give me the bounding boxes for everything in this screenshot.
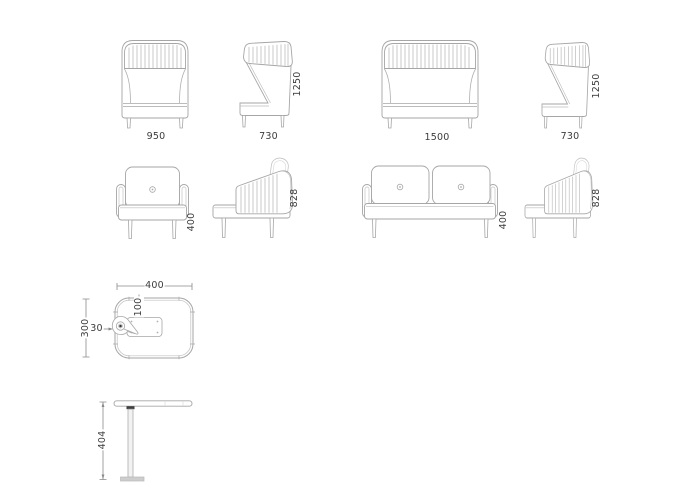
dim-label-hb-sofa-height: 1250	[592, 73, 602, 98]
lowback-sofa-side-view	[525, 157, 593, 237]
dim-label-hb-armchair-height: 1250	[293, 72, 303, 97]
table-side-view	[100, 401, 193, 481]
dim-label-table-inset: 100	[134, 296, 144, 317]
dim-label-lb-sofa-seat-height: 400	[499, 211, 509, 230]
lowback-sofa-front-view	[363, 166, 498, 238]
table-leg	[128, 409, 133, 477]
highback-sofa-front-view	[382, 41, 478, 129]
lowback-armchair-front-view	[117, 167, 189, 239]
table-top-view	[83, 283, 196, 359]
dim-label-lb-armchair-seat-height: 400	[187, 213, 197, 232]
dim-label-table-height: 404	[98, 430, 108, 451]
table-clamp-block	[127, 406, 135, 409]
highback-armchair-side-view	[240, 41, 292, 127]
highback-sofa-side-view	[542, 42, 590, 128]
dim-label-lb-armchair-back-height: 828	[290, 189, 300, 208]
drawing-sheet: 950 730 1250 1500 730 1250 400 828 400 8…	[0, 0, 700, 504]
table-base	[121, 477, 145, 481]
dim-label-table-rim: 30	[89, 324, 104, 334]
dim-label-hb-sofa-width: 1500	[425, 133, 450, 143]
dim-label-hb-armchair-width: 950	[147, 132, 166, 142]
lowback-armchair-side-view	[213, 157, 293, 237]
highback-armchair-front-view	[122, 41, 188, 129]
dim-label-lb-sofa-back-height: 828	[592, 188, 602, 207]
dim-label-hb-sofa-depth: 730	[561, 132, 580, 142]
dim-label-table-width: 400	[144, 281, 165, 291]
dim-label-hb-armchair-depth: 730	[259, 132, 278, 142]
